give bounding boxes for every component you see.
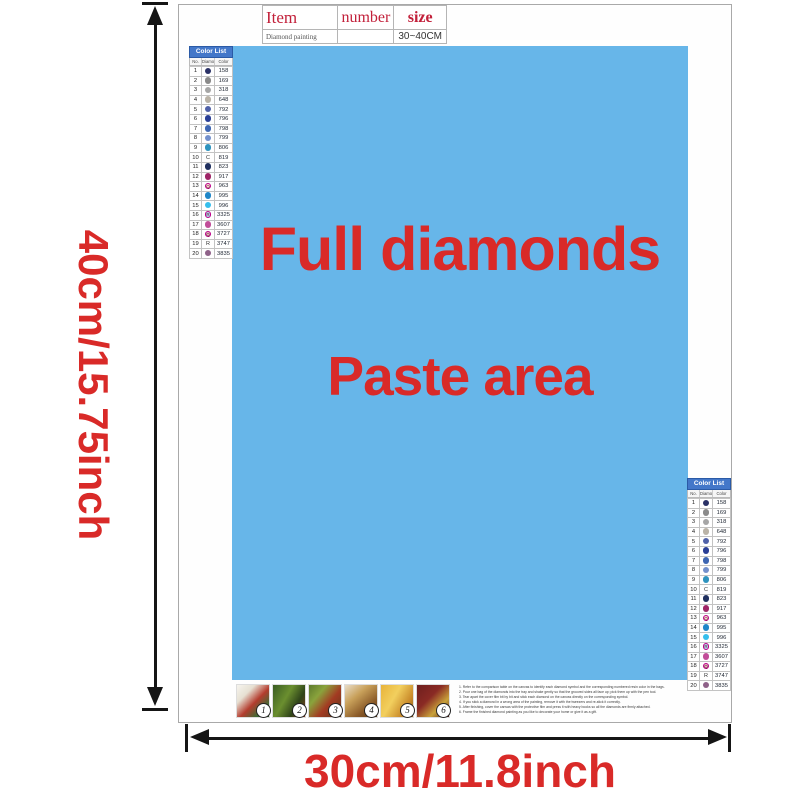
color-list-row: 4648 <box>190 95 233 105</box>
dmc-color-code: 819 <box>215 153 233 163</box>
diamond-symbol-icon <box>703 557 710 564</box>
dmc-color-code: 823 <box>713 594 731 604</box>
diamond-symbol-icon <box>703 605 710 612</box>
color-row-number: 17 <box>190 220 202 230</box>
diamond-symbol-cell: Q <box>202 230 215 240</box>
color-row-number: 19 <box>688 671 700 681</box>
diamond-symbol-icon: R <box>205 211 212 218</box>
color-list-row: 203835 <box>688 681 731 691</box>
diamond-symbol-icon <box>703 528 710 535</box>
color-list-row: 9806 <box>190 143 233 153</box>
vertical-arrow-bottom-cap <box>142 708 168 711</box>
color-list-row: 13Q963 <box>190 182 233 192</box>
step-number-badge: 2 <box>292 703 307 718</box>
height-dimension-label: 40cm/15.75inch <box>69 230 117 541</box>
diamond-symbol-cell: C <box>202 153 215 163</box>
instruction-step-image: 2 <box>272 684 306 718</box>
color-row-number: 3 <box>190 86 202 96</box>
col-no-label: No. <box>688 490 700 497</box>
color-list-row: 3318 <box>190 86 233 96</box>
diamond-symbol-cell <box>700 681 713 691</box>
diamond-symbol-icon <box>205 163 212 170</box>
dmc-color-code: 3747 <box>713 671 731 681</box>
diamond-symbol-icon <box>703 576 710 583</box>
diamond-symbol-cell <box>202 124 215 134</box>
diamond-symbol-cell <box>700 566 713 576</box>
number-value-cell <box>338 30 394 44</box>
color-row-number: 17 <box>688 652 700 662</box>
color-list-row: 8799 <box>190 134 233 144</box>
diamond-symbol-icon: Q <box>205 183 212 190</box>
color-list-row: 203835 <box>190 249 233 259</box>
color-row-number: 1 <box>190 67 202 77</box>
diamond-symbol-icon: R <box>703 643 710 650</box>
dmc-color-code: 792 <box>713 537 731 547</box>
color-row-number: 11 <box>190 162 202 172</box>
color-list-row: 10C819 <box>190 153 233 163</box>
diamond-symbol-cell <box>700 594 713 604</box>
color-row-number: 2 <box>688 508 700 518</box>
diamond-symbol-cell <box>202 76 215 86</box>
color-row-number: 15 <box>688 633 700 643</box>
dmc-color-code: 169 <box>215 76 233 86</box>
diamond-symbol-icon <box>205 192 212 199</box>
color-row-number: 13 <box>190 182 202 192</box>
color-row-number: 14 <box>688 623 700 633</box>
diamond-symbol-cell <box>700 652 713 662</box>
diamond-symbol-cell <box>700 623 713 633</box>
dmc-color-code: 819 <box>713 585 731 595</box>
color-row-number: 7 <box>190 124 202 134</box>
diamond-symbol-icon <box>205 173 212 180</box>
diamond-symbol-cell: Q <box>202 182 215 192</box>
color-list-row: 14995 <box>190 191 233 201</box>
width-dimension-label: 30cm/11.8inch <box>180 744 740 798</box>
dmc-color-code: 648 <box>713 527 731 537</box>
diamond-symbol-cell <box>202 105 215 115</box>
color-row-number: 6 <box>190 114 202 124</box>
color-row-number: 10 <box>190 153 202 163</box>
arrowhead-down-icon <box>147 687 163 706</box>
item-table-header-row: Item number size <box>263 6 447 30</box>
color-row-number: 16 <box>190 210 202 220</box>
color-row-number: 12 <box>190 172 202 182</box>
diamond-symbol-cell <box>202 134 215 144</box>
color-list-row: 11823 <box>190 162 233 172</box>
dmc-color-code: 798 <box>713 556 731 566</box>
arrowhead-right-icon <box>708 729 727 745</box>
color-list-row: 173607 <box>688 652 731 662</box>
diamond-symbol-cell: C <box>700 585 713 595</box>
dmc-color-code: 3607 <box>215 220 233 230</box>
color-list-row: 2169 <box>190 76 233 86</box>
diamond-symbol-icon: Q <box>703 615 710 622</box>
color-row-number: 4 <box>190 95 202 105</box>
instruction-step-image: 6 <box>416 684 450 718</box>
color-list-right: Color List No. Diamond Color 11582169331… <box>687 478 731 691</box>
diamond-symbol-cell <box>700 508 713 518</box>
diamond-symbol-cell <box>202 191 215 201</box>
diamond-symbol-icon <box>205 87 212 94</box>
size-value-cell: 30~40CM <box>394 30 447 44</box>
color-row-number: 18 <box>190 230 202 240</box>
full-diamonds-label: Full diamonds <box>232 214 688 284</box>
color-row-number: 14 <box>190 191 202 201</box>
diamond-symbol-icon <box>703 538 710 545</box>
diamond-symbol-cell <box>202 172 215 182</box>
color-row-number: 9 <box>190 143 202 153</box>
color-row-number: 3 <box>688 518 700 528</box>
dmc-color-code: 996 <box>215 201 233 211</box>
diamond-symbol-icon <box>703 624 710 631</box>
diamond-symbol-cell <box>700 546 713 556</box>
color-list-row: 18Q3727 <box>190 230 233 240</box>
step-number-badge: 5 <box>400 703 415 718</box>
diamond-symbol-cell: R <box>700 671 713 681</box>
color-list-row: 15996 <box>190 201 233 211</box>
diamond-symbol-cell <box>700 537 713 547</box>
step-number-badge: 1 <box>256 703 271 718</box>
instruction-text-line: 6. Frame the finished diamond painting a… <box>459 710 691 715</box>
item-number-size-table: Item number size Diamond painting 30~40C… <box>262 5 447 44</box>
color-row-number: 16 <box>688 642 700 652</box>
dmc-color-code: 3747 <box>215 239 233 249</box>
color-row-number: 7 <box>688 556 700 566</box>
color-list-subheader: No. Diamond Color <box>687 490 731 498</box>
color-row-number: 15 <box>190 201 202 211</box>
diamond-symbol-cell: R <box>700 642 713 652</box>
diamond-symbol-icon <box>205 115 212 122</box>
diamond-symbol-icon: R <box>206 241 210 247</box>
dmc-color-code: 318 <box>713 518 731 528</box>
diamond-symbol-cell <box>700 633 713 643</box>
dmc-color-code: 3325 <box>215 210 233 220</box>
diamond-symbol-icon: C <box>704 587 708 593</box>
color-list-row: 16R3325 <box>190 210 233 220</box>
color-list-row: 3318 <box>688 518 731 528</box>
dmc-color-code: 799 <box>215 134 233 144</box>
color-list-row: 5792 <box>688 537 731 547</box>
diamond-symbol-icon: Q <box>703 663 710 670</box>
dmc-color-code: 995 <box>713 623 731 633</box>
dmc-color-code: 648 <box>215 95 233 105</box>
dmc-color-code: 3727 <box>713 662 731 672</box>
color-list-row: 16R3325 <box>688 642 731 652</box>
size-header-cell: size <box>394 6 447 30</box>
instruction-step-image: 4 <box>344 684 378 718</box>
instruction-small-print: 1. Refer to the comparison table on the … <box>459 685 691 714</box>
diamond-symbol-icon <box>703 500 710 507</box>
color-list-row: 18Q3727 <box>688 662 731 672</box>
color-list-row: 12917 <box>190 172 233 182</box>
item-header-cell: Item <box>263 6 338 30</box>
col-color-label: Color <box>215 58 232 65</box>
color-row-number: 2 <box>190 76 202 86</box>
color-row-number: 10 <box>688 585 700 595</box>
color-list-left: Color List No. Diamond Color 11582169331… <box>189 46 233 259</box>
color-row-number: 11 <box>688 594 700 604</box>
diamond-symbol-icon <box>205 135 212 142</box>
color-list-row: 1158 <box>190 67 233 77</box>
product-size-diagram: Full diamonds Paste area Item number siz… <box>0 0 800 800</box>
color-row-number: 5 <box>190 105 202 115</box>
step-number-badge: 4 <box>364 703 379 718</box>
diamond-symbol-cell <box>202 249 215 259</box>
diamond-symbol-icon <box>703 595 710 602</box>
diamond-symbol-cell <box>202 67 215 77</box>
dmc-color-code: 796 <box>215 114 233 124</box>
col-no-label: No. <box>190 58 202 65</box>
color-list-row: 9806 <box>688 575 731 585</box>
color-row-number: 4 <box>688 527 700 537</box>
diamond-symbol-icon <box>703 634 710 641</box>
color-row-number: 8 <box>688 566 700 576</box>
diamond-symbol-icon <box>205 125 212 132</box>
color-list-row: 7798 <box>688 556 731 566</box>
color-list-row: 7798 <box>190 124 233 134</box>
color-list-row: 10C819 <box>688 585 731 595</box>
vertical-arrow-line <box>154 18 157 694</box>
color-list-row: 19R3747 <box>688 671 731 681</box>
color-list-row: 2169 <box>688 508 731 518</box>
diamond-symbol-cell <box>700 556 713 566</box>
diamond-symbol-cell <box>202 220 215 230</box>
color-row-number: 20 <box>190 249 202 259</box>
dmc-color-code: 917 <box>713 604 731 614</box>
dmc-color-code: 3325 <box>713 642 731 652</box>
step-number-badge: 6 <box>436 703 451 718</box>
diamond-symbol-icon <box>205 77 212 84</box>
col-diamond-label: Diamond <box>700 490 713 497</box>
color-row-number: 18 <box>688 662 700 672</box>
color-row-number: 12 <box>688 604 700 614</box>
dmc-color-code: 996 <box>713 633 731 643</box>
dmc-color-code: 318 <box>215 86 233 96</box>
col-diamond-label: Diamond <box>202 58 215 65</box>
dmc-color-code: 3607 <box>713 652 731 662</box>
diamond-symbol-cell <box>202 201 215 211</box>
paste-area-label: Paste area <box>232 344 688 408</box>
diamond-symbol-cell: Q <box>700 662 713 672</box>
color-list-row: 13Q963 <box>688 614 731 624</box>
diamond-symbol-cell <box>202 86 215 96</box>
dmc-color-code: 3835 <box>215 249 233 259</box>
instruction-step-image: 5 <box>380 684 414 718</box>
diamond-symbol-icon <box>703 547 710 554</box>
diamond-symbol-icon <box>703 519 710 526</box>
color-row-number: 19 <box>190 239 202 249</box>
dmc-color-code: 158 <box>713 499 731 509</box>
diamond-symbol-cell: R <box>202 239 215 249</box>
color-list-row: 15996 <box>688 633 731 643</box>
dmc-color-code: 3835 <box>713 681 731 691</box>
number-header-cell: number <box>338 6 394 30</box>
diamond-symbol-icon <box>703 682 710 689</box>
color-row-number: 6 <box>688 546 700 556</box>
color-list-row: 14995 <box>688 623 731 633</box>
diamond-symbol-icon <box>205 250 212 257</box>
dmc-color-code: 917 <box>215 172 233 182</box>
color-row-number: 5 <box>688 537 700 547</box>
diamond-symbol-icon <box>205 202 212 209</box>
product-name-cell: Diamond painting <box>263 30 338 44</box>
horizontal-arrow-line <box>204 737 712 740</box>
color-list-row: 19R3747 <box>190 239 233 249</box>
dmc-color-code: 796 <box>713 546 731 556</box>
color-row-number: 8 <box>190 134 202 144</box>
diamond-symbol-cell <box>202 143 215 153</box>
diamond-symbol-cell <box>700 527 713 537</box>
vertical-arrow-top-cap <box>142 2 168 5</box>
color-list-row: 6796 <box>190 114 233 124</box>
dmc-color-code: 158 <box>215 67 233 77</box>
color-list-row: 1158 <box>688 499 731 509</box>
diamond-symbol-cell <box>700 575 713 585</box>
dmc-color-code: 823 <box>215 162 233 172</box>
diamond-symbol-cell <box>700 604 713 614</box>
color-list-row: 8799 <box>688 566 731 576</box>
diamond-symbol-cell <box>700 518 713 528</box>
color-list-row: 5792 <box>190 105 233 115</box>
color-list-row: 12917 <box>688 604 731 614</box>
color-list-row: 4648 <box>688 527 731 537</box>
diamond-symbol-icon <box>703 653 710 660</box>
color-row-number: 13 <box>688 614 700 624</box>
col-color-label: Color <box>713 490 730 497</box>
diamond-symbol-cell <box>202 162 215 172</box>
color-row-number: 1 <box>688 499 700 509</box>
diamond-symbol-cell <box>202 114 215 124</box>
diamond-symbol-cell <box>202 95 215 105</box>
dmc-color-code: 799 <box>713 566 731 576</box>
dmc-color-code: 3727 <box>215 230 233 240</box>
instruction-step-image: 3 <box>308 684 342 718</box>
diamond-symbol-icon: C <box>206 155 210 161</box>
diamond-symbol-icon <box>205 68 212 75</box>
color-list-row: 173607 <box>190 220 233 230</box>
instruction-step-image: 1 <box>236 684 270 718</box>
diamond-symbol-icon <box>703 567 710 574</box>
dmc-color-code: 798 <box>215 124 233 134</box>
diamond-symbol-icon <box>205 96 212 103</box>
diamond-symbol-icon: Q <box>205 231 212 238</box>
step-number-badge: 3 <box>328 703 343 718</box>
color-list-title: Color List <box>687 478 731 490</box>
dmc-color-code: 792 <box>215 105 233 115</box>
dmc-color-code: 806 <box>713 575 731 585</box>
dmc-color-code: 169 <box>713 508 731 518</box>
dmc-color-code: 963 <box>215 182 233 192</box>
dmc-color-code: 995 <box>215 191 233 201</box>
item-table-data-row: Diamond painting 30~40CM <box>263 30 447 44</box>
diamond-symbol-icon <box>205 144 212 151</box>
color-list-row: 11823 <box>688 594 731 604</box>
color-row-number: 9 <box>688 575 700 585</box>
diamond-symbol-icon <box>703 509 710 516</box>
diamond-symbol-cell: Q <box>700 614 713 624</box>
dmc-color-code: 806 <box>215 143 233 153</box>
diamond-symbol-cell: R <box>202 210 215 220</box>
diamond-symbol-icon <box>205 106 212 113</box>
color-list-subheader: No. Diamond Color <box>189 58 233 66</box>
diamond-symbol-icon <box>205 221 212 228</box>
dmc-color-code: 963 <box>713 614 731 624</box>
diamond-symbol-cell <box>700 499 713 509</box>
color-list-row: 6796 <box>688 546 731 556</box>
diamond-symbol-icon: R <box>704 673 708 679</box>
color-list-title: Color List <box>189 46 233 58</box>
